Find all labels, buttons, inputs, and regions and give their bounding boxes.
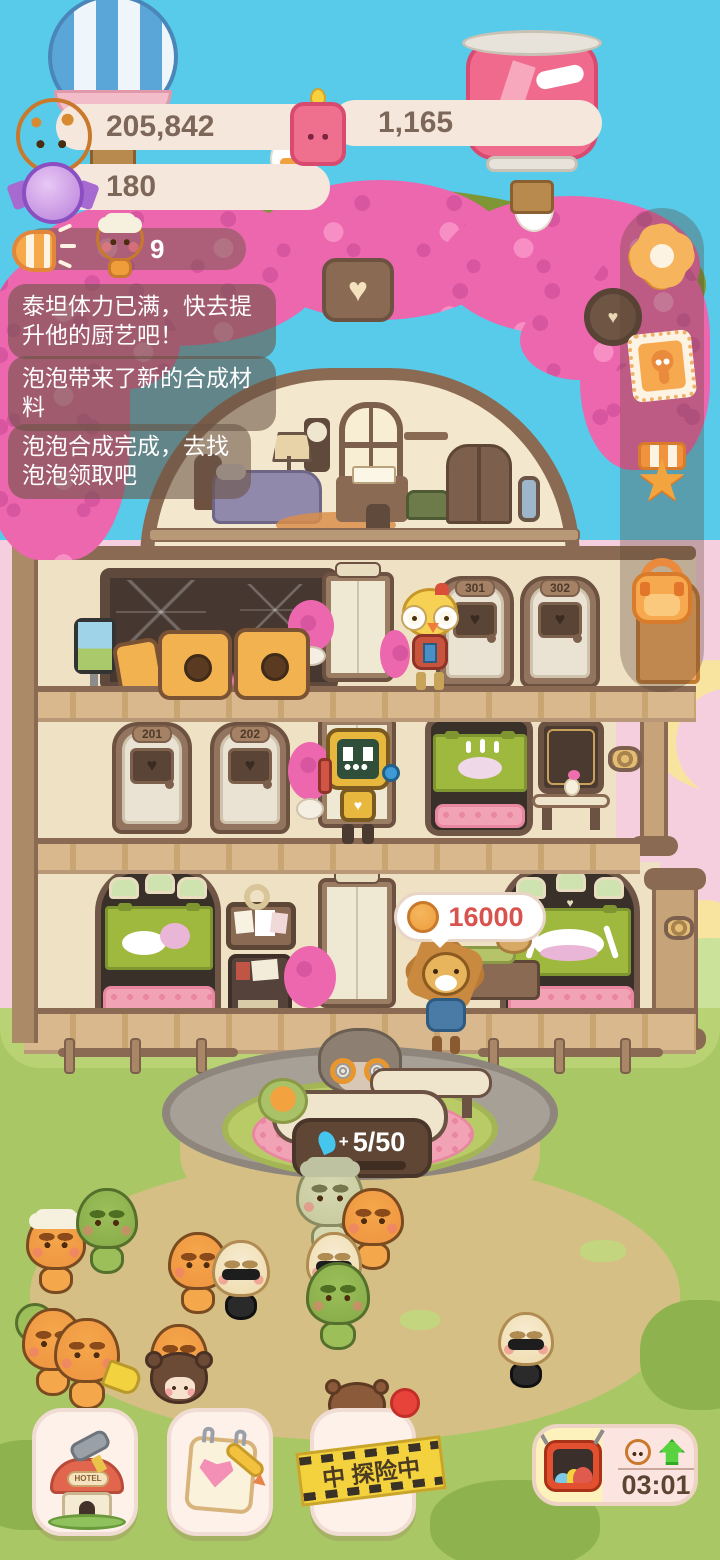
tv-blob-red xyxy=(573,1467,593,1483)
door-knob xyxy=(573,634,582,643)
cookie-count: 205,842 xyxy=(106,110,214,144)
transom-window xyxy=(594,877,624,899)
open-book xyxy=(251,959,279,981)
chicken-npc[interactable] xyxy=(398,586,462,690)
gingerbread-body xyxy=(108,258,132,278)
gingerbread-count-icon xyxy=(94,216,146,282)
plate-rim xyxy=(540,945,598,961)
eye xyxy=(433,969,438,974)
toast-message: 泡泡合成完成，去找泡泡领取吧 xyxy=(8,424,251,499)
leg xyxy=(434,672,444,690)
pillar-cap xyxy=(644,868,706,890)
table-top xyxy=(532,794,610,808)
bench-leg xyxy=(462,1096,472,1118)
lion-face xyxy=(422,952,470,996)
toast-message: 泡泡带来了新的合成材料 xyxy=(8,356,276,431)
room-number-plate: 302 xyxy=(540,579,580,597)
robot-dial-blue xyxy=(382,764,400,782)
can-bottom xyxy=(486,156,578,172)
room-number: 301 xyxy=(465,581,485,595)
fence-post xyxy=(196,1038,207,1074)
elevator-doors xyxy=(331,581,385,673)
gingerbread-head xyxy=(96,216,144,262)
elevator-sign xyxy=(335,562,381,578)
notepad-icon xyxy=(184,1435,258,1515)
room-number: 201 xyxy=(142,727,162,741)
candy-ball xyxy=(22,162,84,224)
transom-window xyxy=(145,872,175,894)
info-sign-screen[interactable] xyxy=(74,618,116,674)
guest-gingerbread-megaphone[interactable] xyxy=(54,1318,120,1414)
elevator-doors xyxy=(327,887,387,999)
cookie-icon xyxy=(407,901,439,933)
robot-head xyxy=(326,728,390,790)
wood-knot xyxy=(608,746,642,772)
tv-ad-timer-button[interactable]: 03:01 xyxy=(532,1424,698,1506)
fence-rail-right xyxy=(478,1048,663,1057)
eye xyxy=(412,616,417,621)
girl-hair xyxy=(150,1352,208,1404)
megaphone-horn xyxy=(12,230,56,272)
pink-cloud-design xyxy=(160,923,190,949)
vase-flower xyxy=(568,770,580,780)
grass-tuft xyxy=(400,1310,440,1330)
fence-post xyxy=(64,1038,75,1074)
wreath-decor xyxy=(244,884,270,910)
door-panel: ♥ xyxy=(220,732,280,824)
flower-bush xyxy=(380,630,410,678)
robot-npc[interactable]: ♥ xyxy=(324,728,392,854)
red-notification-dot xyxy=(390,1388,420,1418)
steam xyxy=(466,741,471,753)
door-panel: ♥ xyxy=(530,586,590,678)
notice-paper xyxy=(270,912,288,934)
heart-window: ♥ xyxy=(228,748,272,784)
transom-window xyxy=(177,877,207,899)
stool xyxy=(366,504,390,530)
book-prop xyxy=(423,643,437,663)
eye xyxy=(454,969,459,974)
fence-rail-left xyxy=(58,1048,238,1057)
chicken-body xyxy=(412,634,448,670)
ghost-stamp-icon xyxy=(627,329,698,403)
sign-picture xyxy=(78,622,112,670)
grey-hair xyxy=(306,1157,353,1173)
pot xyxy=(296,798,324,820)
fork-design xyxy=(603,925,619,959)
tv-screen xyxy=(553,1449,593,1483)
stamp-inner xyxy=(638,340,687,392)
floor-lamp-shade xyxy=(272,432,312,462)
timer-value: 03:01 xyxy=(616,1470,696,1501)
ghost-ban-badge xyxy=(261,653,289,681)
lion-muzzle xyxy=(435,975,457,991)
heart-doodle xyxy=(198,1456,234,1489)
can-lid xyxy=(462,30,602,56)
laundry-interior xyxy=(101,872,215,1010)
house-lawn xyxy=(48,1514,126,1530)
hair-bun xyxy=(145,1351,163,1369)
door-knob xyxy=(165,780,174,789)
price-value: 16000 xyxy=(439,902,533,933)
adventure-button[interactable]: 中 探险中 xyxy=(310,1408,416,1536)
clock-face xyxy=(307,422,327,442)
heart-window-emblem: ♥ xyxy=(322,258,394,322)
white-hair xyxy=(104,213,136,229)
side-table xyxy=(532,794,610,830)
flower-decor xyxy=(258,1078,308,1124)
wall-shelf xyxy=(404,432,448,440)
house-roof: HOTEL xyxy=(50,1458,124,1494)
onsen-mat xyxy=(435,804,525,828)
suitcase[interactable] xyxy=(234,628,310,700)
hotel-sign: HOTEL xyxy=(67,1471,109,1487)
table-leg xyxy=(590,808,600,830)
laundry-shop-arch[interactable] xyxy=(95,866,221,1016)
floor3-beam xyxy=(24,546,696,560)
leg xyxy=(450,1036,460,1054)
tv-antenna xyxy=(593,1429,604,1445)
wood-knot xyxy=(664,916,694,940)
girl-face xyxy=(165,1377,195,1399)
floor3-floorboards xyxy=(24,686,696,722)
can-basket xyxy=(510,180,554,214)
toast-text: 泡泡带来了新的合成材料 xyxy=(22,365,252,420)
robot-eye xyxy=(343,747,353,761)
spiral-ring xyxy=(202,1426,215,1443)
suitcase[interactable] xyxy=(158,630,232,700)
hotel-manage-button[interactable]: HOTEL xyxy=(32,1408,138,1536)
guest-cream-sunglasses[interactable] xyxy=(498,1312,554,1392)
book xyxy=(236,962,250,980)
steam xyxy=(494,741,499,753)
chicken-head xyxy=(402,588,458,638)
onsen-bowl xyxy=(458,757,502,779)
game-screen: 301 ♥ 302 ♥ 201 ♥ 202 ♥ ♥ xyxy=(0,0,720,1560)
ghost-body xyxy=(658,369,669,384)
heart-window: ♥ xyxy=(538,602,582,638)
bubble-tail xyxy=(430,938,450,958)
inventory-button[interactable] xyxy=(626,556,698,628)
reward-row xyxy=(616,1436,694,1468)
onsen-interior xyxy=(431,722,527,830)
notice-paper xyxy=(234,910,254,934)
leg xyxy=(416,672,426,690)
achievements-button[interactable]: ★ xyxy=(626,440,698,512)
sound-line xyxy=(58,223,72,232)
balcony-rail xyxy=(148,528,580,542)
book-stack xyxy=(238,1000,278,1008)
diary-button[interactable] xyxy=(167,1408,273,1536)
guest-girl-pigtails[interactable] xyxy=(142,1352,216,1412)
guest-matcha[interactable] xyxy=(76,1188,138,1278)
megaphone-icon[interactable] xyxy=(10,222,76,280)
room-door-202[interactable]: 202 ♥ xyxy=(210,722,290,834)
onsen-noren xyxy=(433,734,527,792)
table-leg xyxy=(542,808,552,830)
mirror xyxy=(518,476,540,522)
cloud-noren xyxy=(105,906,213,970)
robot-leg xyxy=(362,824,374,844)
plus-sign: + xyxy=(339,1132,349,1152)
pink-flowers xyxy=(284,946,336,1008)
medal-star-icon: ★ xyxy=(626,450,698,512)
room-number: 302 xyxy=(550,581,570,595)
fence-post xyxy=(620,1038,631,1074)
capacity-value: 5/50 xyxy=(353,1127,406,1158)
feather-icon xyxy=(315,1129,339,1156)
tv-antenna xyxy=(537,1429,548,1445)
gear-hole xyxy=(650,244,674,268)
settings-button[interactable] xyxy=(626,220,698,292)
backpack-pocket xyxy=(644,594,680,616)
open-book xyxy=(352,466,396,484)
fence-post xyxy=(554,1038,565,1074)
toast-text: 泡泡合成完成，去找泡泡领取吧 xyxy=(22,433,229,488)
door-knob xyxy=(263,780,272,789)
beak xyxy=(427,623,439,633)
ghost-ban-badge xyxy=(184,654,212,682)
lion-jacket xyxy=(426,998,466,1032)
building-left-edge xyxy=(12,545,38,1043)
candy-count: 180 xyxy=(106,170,156,204)
door-knob xyxy=(487,634,496,643)
guest-cream-sunglasses[interactable] xyxy=(212,1240,270,1324)
room-number: 202 xyxy=(240,727,260,741)
bear-ear xyxy=(373,1379,389,1395)
hair-bun xyxy=(195,1351,213,1369)
guest-matcha[interactable] xyxy=(306,1262,370,1354)
room-number-plate: 202 xyxy=(230,725,270,743)
room-door-302[interactable]: 302 ♥ xyxy=(520,576,600,688)
robot-leg xyxy=(342,824,354,844)
upgrade-arrow-icon xyxy=(659,1439,685,1465)
heart-window: ♥ xyxy=(130,748,174,784)
wardrobe xyxy=(446,444,512,524)
candle-currency-pill[interactable]: 1,165 xyxy=(332,100,602,146)
candle-currency-icon xyxy=(288,88,350,170)
steam xyxy=(480,739,485,753)
toast-message: 泰坦体力已满，快去提升他的厨艺吧！ xyxy=(8,284,276,359)
glasses-left xyxy=(403,607,425,629)
cookie-reward-icon xyxy=(625,1439,651,1465)
eye xyxy=(444,616,449,621)
robot-eye xyxy=(363,747,373,761)
sound-line xyxy=(60,244,76,248)
sound-line xyxy=(58,259,72,268)
vase xyxy=(564,778,580,796)
toast-text: 泰坦体力已满，快去提升他的厨艺吧！ xyxy=(22,293,252,348)
collection-button[interactable] xyxy=(626,330,698,402)
gingerbread-count: 9 xyxy=(150,234,164,265)
robot-screen xyxy=(337,739,379,779)
room-number-plate: 201 xyxy=(132,725,172,743)
room-price-bubble[interactable]: 16000 xyxy=(394,892,546,942)
backpack-strap xyxy=(640,582,650,596)
door-panel: ♥ xyxy=(122,732,182,824)
tv-icon xyxy=(544,1440,602,1492)
candle-count: 1,165 xyxy=(378,106,453,140)
fence-post xyxy=(130,1038,141,1074)
robot-torso: ♥ xyxy=(340,788,376,822)
glasses-right xyxy=(435,607,457,629)
candle-body xyxy=(290,102,346,166)
transom-window xyxy=(109,877,139,899)
bear-ear xyxy=(325,1379,341,1395)
storage-chest xyxy=(406,490,450,520)
robot-tank-red xyxy=(318,758,332,794)
hotel-sign-text: HOTEL xyxy=(74,1474,101,1483)
room-door-201[interactable]: 201 ♥ xyxy=(112,722,192,834)
white-hair xyxy=(35,1209,76,1225)
onsen-shop-arch[interactable] xyxy=(425,716,533,836)
comb xyxy=(435,583,449,595)
can-script xyxy=(535,63,586,91)
swirl-glasses-left xyxy=(330,1058,356,1084)
backpack-icon xyxy=(632,572,692,624)
capacity-row: + 5/50 xyxy=(319,1127,406,1158)
grass-tuft xyxy=(580,1240,626,1262)
wood-pillar xyxy=(640,700,668,856)
backpack-strap xyxy=(674,582,684,596)
leaf-hood xyxy=(15,1303,55,1343)
